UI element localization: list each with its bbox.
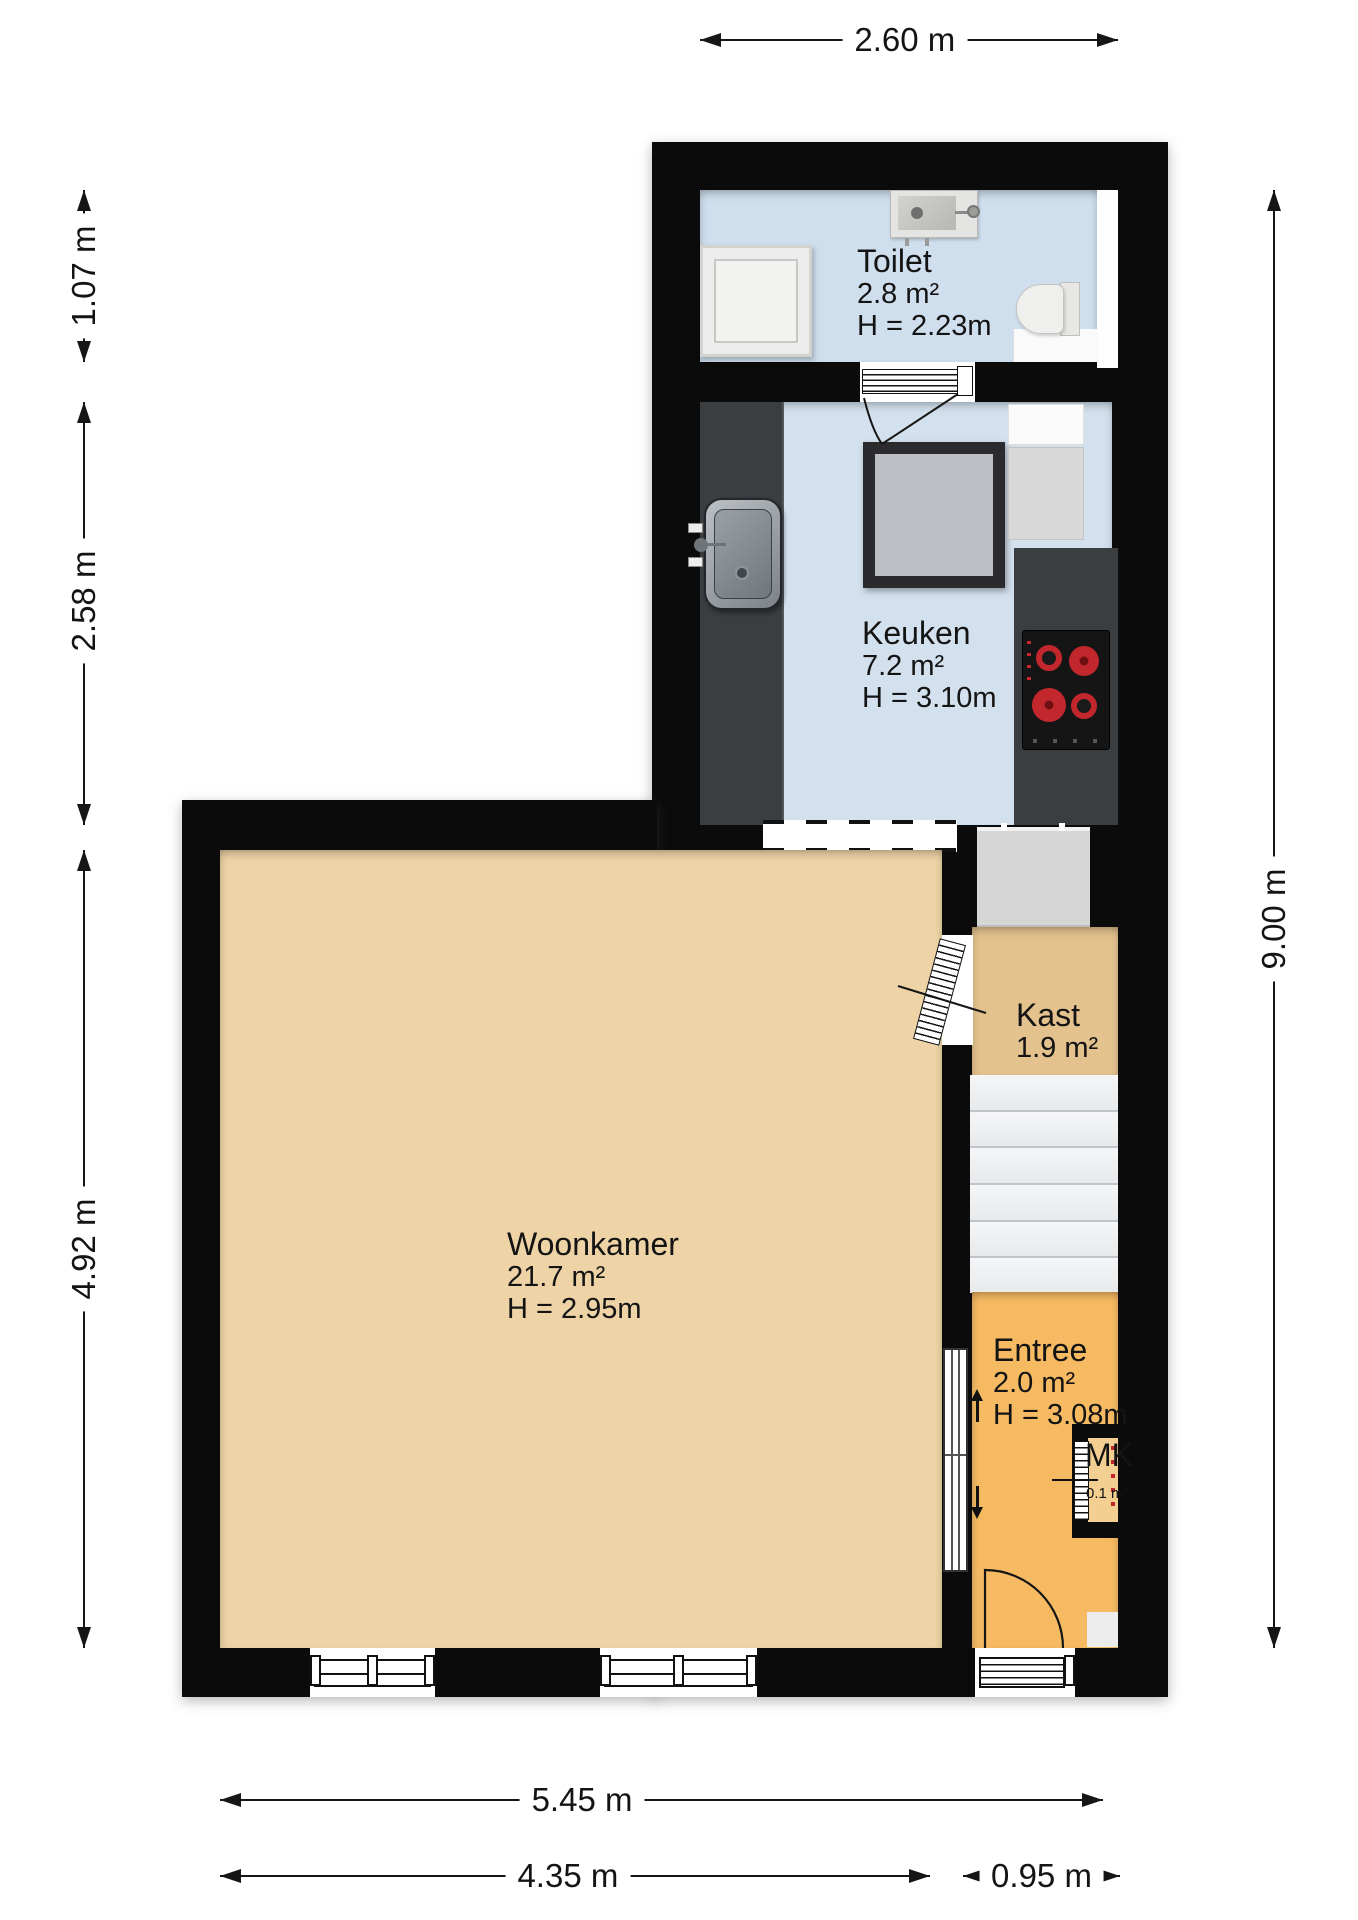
glazing-bar: [958, 1350, 960, 1570]
stair-tread: [970, 1258, 1118, 1293]
fridge-panel: [1008, 404, 1084, 445]
passage-dashes-top: [763, 820, 957, 824]
entree-mat: [1087, 1612, 1118, 1647]
dimension-bottom-left: 4.35 m: [220, 1875, 930, 1877]
woonkamer-area: 21.7 m²: [507, 1262, 679, 1294]
room-label-woonkamer: Woonkamer 21.7 m² H = 2.95m: [507, 1227, 679, 1326]
window-mullion: [600, 1655, 611, 1686]
washbasin-icon: [890, 190, 978, 238]
dimension-label: 0.95 m: [979, 1857, 1104, 1895]
window-mullion: [367, 1655, 378, 1686]
burner-icon: [1032, 688, 1066, 722]
front-door-swing-icon: [978, 1558, 1072, 1650]
staircase: [970, 1075, 1118, 1293]
room-label-mk: MK: [1085, 1438, 1133, 1473]
dimension-label: 1.07 m: [65, 214, 103, 339]
dimension-bottom-right: 0.95 m: [963, 1875, 1120, 1877]
arrow-down-icon: [77, 804, 91, 825]
cooktop-indicator-dots: [1027, 641, 1031, 681]
stair-tread: [970, 1075, 1118, 1112]
toilet-area: 2.8 m²: [857, 279, 992, 311]
dimension-right-height: 9.00 m: [1273, 190, 1275, 1648]
dimension-label: 2.60 m: [842, 21, 967, 59]
room-label-keuken: Keuken 7.2 m² H = 3.10m: [862, 616, 997, 715]
mk-area-label: 0.1 m²: [1086, 1486, 1129, 1503]
sink-faucet-handle-icon: [688, 523, 703, 533]
cooktop-knobs: [1033, 739, 1099, 743]
arrow-up-icon: [77, 850, 91, 871]
entree-area: 2.0 m²: [993, 1368, 1128, 1400]
basin-faucet-knob-icon: [967, 205, 980, 218]
glazing-bar: [951, 1350, 953, 1570]
kitchen-island: [863, 442, 1005, 588]
dimension-label: 9.00 m: [1255, 857, 1293, 982]
arrow-down-icon: [77, 341, 91, 362]
dimension-label: 4.35 m: [505, 1857, 630, 1895]
threshold-glazing: [979, 1657, 1065, 1688]
arrow-left-icon: [700, 33, 721, 47]
arrow-down-icon: [1267, 1627, 1281, 1648]
window: [310, 1648, 435, 1697]
wc-bowl-icon: [1016, 284, 1064, 334]
stair-cabinet: [977, 827, 1090, 927]
burner-icon: [1071, 693, 1097, 719]
glazed-partition-icon: [943, 1348, 968, 1572]
floor-plan-canvas: Toilet 2.8 m² H = 2.23m Keuken 7.2 m² H …: [0, 0, 1358, 1920]
toilet-height: H = 2.23m: [857, 311, 992, 343]
arrow-right-icon: [1097, 33, 1118, 47]
toilet-door-swing-icon: [856, 390, 968, 454]
stair-tread: [970, 1185, 1118, 1222]
keuken-name: Keuken: [862, 616, 997, 651]
mk-area: 0.1 m²: [1086, 1486, 1129, 1503]
kitchen-counter-left: [700, 402, 784, 825]
dimension-label: 5.45 m: [520, 1781, 645, 1819]
front-door-threshold: [975, 1648, 1075, 1697]
mk-name: MK: [1085, 1438, 1133, 1473]
glazing-bar: [945, 1454, 966, 1456]
sink-basin-icon: [714, 509, 772, 599]
arrow-down-icon: [77, 1627, 91, 1648]
stairs-up-arrow-icon: [976, 1400, 979, 1422]
sink-drain-icon: [735, 566, 749, 580]
dimension-left-woonkamer: 4.92 m: [83, 850, 85, 1648]
shower-icon: [700, 245, 812, 357]
arrow-left-icon: [220, 1869, 241, 1883]
keuken-height: H = 3.10m: [862, 683, 997, 715]
mk-leader-line: [1052, 1479, 1098, 1481]
arrow-up-icon: [1267, 190, 1281, 211]
window-mullion: [310, 1655, 321, 1686]
cooktop-icon: [1022, 630, 1110, 750]
window: [600, 1648, 757, 1697]
stair-tread: [970, 1112, 1118, 1149]
dimension-left-keuken: 2.58 m: [83, 402, 85, 825]
stair-tread: [970, 1148, 1118, 1185]
basin-drain-icon: [911, 207, 923, 219]
woonkamer-name: Woonkamer: [507, 1227, 679, 1262]
window-mullion: [746, 1655, 757, 1686]
room-label-entree: Entree 2.0 m² H = 3.08m: [993, 1333, 1128, 1432]
burner-icon: [1036, 645, 1062, 671]
arrow-up-icon: [77, 402, 91, 423]
kast-door-swing-icon: [894, 980, 990, 1018]
dimension-label: 2.58 m: [65, 538, 103, 663]
arrow-up-icon: [77, 190, 91, 211]
entree-height: H = 3.08m: [993, 1400, 1128, 1432]
arrow-left-icon: [220, 1793, 241, 1807]
arrow-right-icon: [909, 1869, 930, 1883]
stair-tread: [970, 1222, 1118, 1259]
room-label-toilet: Toilet 2.8 m² H = 2.23m: [857, 244, 992, 343]
sink-faucet-handle-icon: [688, 557, 703, 567]
threshold-cap: [1064, 1655, 1075, 1686]
toilet-name: Toilet: [857, 244, 992, 279]
window-mullion: [424, 1655, 435, 1686]
basin-bowl-icon: [898, 196, 956, 230]
woonkamer-height: H = 2.95m: [507, 1294, 679, 1326]
entree-name: Entree: [993, 1333, 1128, 1368]
kast-name: Kast: [1016, 998, 1098, 1033]
passage-opening: [763, 820, 957, 852]
dimension-label: 4.92 m: [65, 1187, 103, 1312]
room-label-kast: Kast 1.9 m²: [1016, 998, 1098, 1065]
toilet-wall-lining: [1097, 190, 1118, 368]
appliance-panel: [1008, 447, 1084, 540]
keuken-area: 7.2 m²: [862, 651, 997, 683]
stairs-down-arrow-icon: [976, 1486, 979, 1508]
dimension-top-width: 2.60 m: [700, 39, 1118, 41]
cabinet-hinge-icon: [1059, 823, 1065, 831]
kast-area: 1.9 m²: [1016, 1033, 1098, 1065]
window-mullion: [673, 1655, 684, 1686]
sink-faucet-spout-icon: [706, 543, 726, 546]
burner-icon: [1069, 646, 1099, 676]
dimension-left-toilet: 1.07 m: [83, 190, 85, 362]
kitchen-sink-icon: [704, 498, 782, 610]
dimension-bottom-total: 5.45 m: [220, 1799, 1103, 1801]
shower-tray-icon: [714, 259, 798, 343]
cabinet-hinge-icon: [1001, 823, 1007, 831]
arrow-right-icon: [1082, 1793, 1103, 1807]
